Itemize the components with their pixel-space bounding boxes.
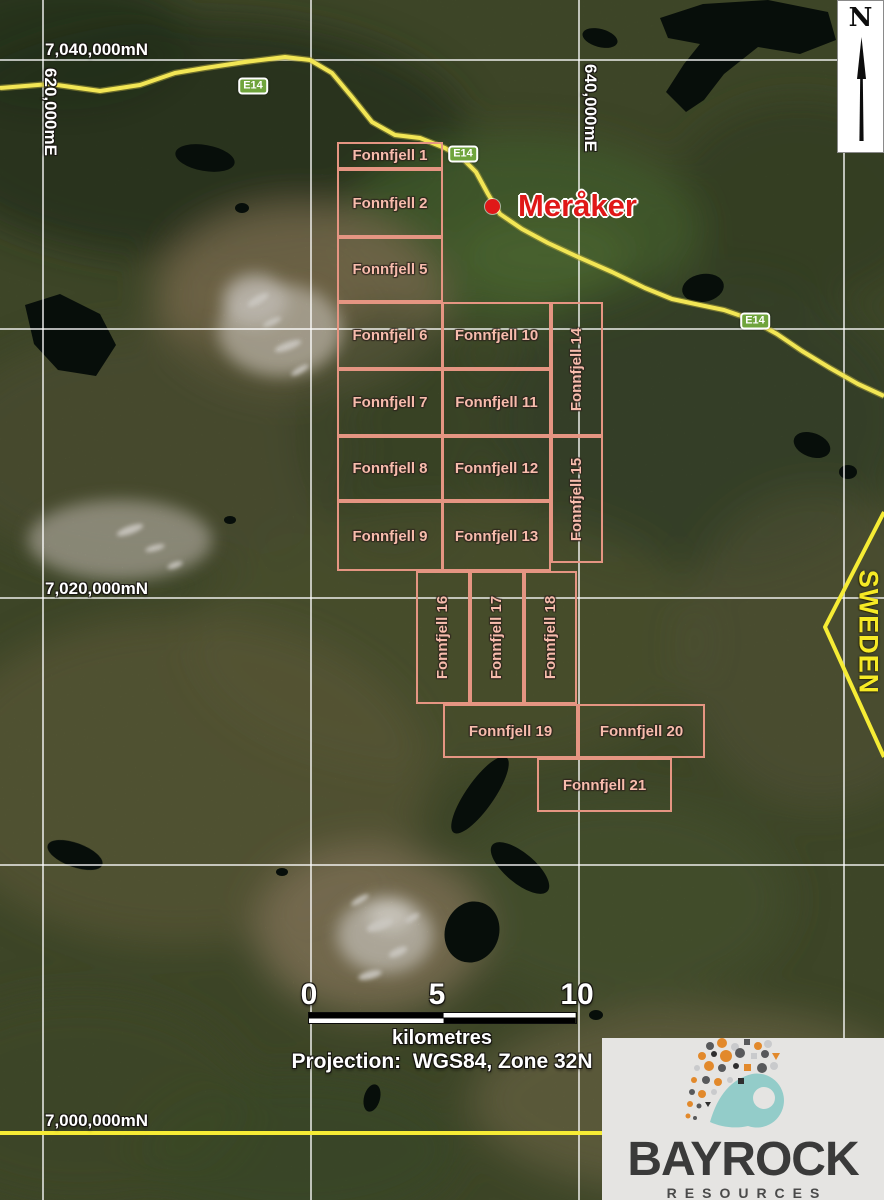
license-label: Fonnfjell 19: [469, 723, 552, 740]
northing-label: 7,000,000mN: [45, 1111, 148, 1131]
license-label: Fonnfjell 2: [353, 195, 428, 212]
northing-label: 7,040,000mN: [45, 40, 148, 60]
license-fonnfjell-6: Fonnfjell 6: [337, 302, 443, 369]
sweden-label: SWEDEN: [853, 570, 884, 695]
easting-label: 620,000mE: [40, 68, 60, 156]
license-fonnfjell-5: Fonnfjell 5: [337, 237, 443, 302]
license-fonnfjell-1: Fonnfjell 1: [337, 142, 443, 169]
license-fonnfjell-2: Fonnfjell 2: [337, 169, 443, 237]
license-fonnfjell-18: Fonnfjell 18: [524, 571, 577, 704]
license-label: Fonnfjell 8: [353, 460, 428, 477]
license-fonnfjell-19: Fonnfjell 19: [443, 704, 578, 758]
license-fonnfjell-12: Fonnfjell 12: [442, 436, 551, 501]
scale-bar: [308, 1012, 577, 1024]
license-fonnfjell-20: Fonnfjell 20: [578, 704, 705, 758]
license-fonnfjell-15: Fonnfjell 15: [551, 436, 603, 563]
satellite-claim-map: Fonnfjell 1Fonnfjell 2Fonnfjell 5Fonnfje…: [0, 0, 884, 1200]
license-label: Fonnfjell 1: [353, 147, 428, 164]
north-arrow-icon: [838, 1, 884, 154]
license-label: Fonnfjell 15: [569, 458, 586, 541]
license-fonnfjell-7: Fonnfjell 7: [337, 369, 443, 436]
north-arrow-box: N: [837, 0, 884, 153]
scale-tick-10: 10: [560, 978, 593, 1012]
license-label: Fonnfjell 13: [455, 528, 538, 545]
scale-bar-unit: kilometres: [392, 1027, 492, 1050]
license-label: Fonnfjell 16: [435, 596, 452, 679]
license-fonnfjell-10: Fonnfjell 10: [442, 302, 551, 369]
projection-note: Projection: WGS84, Zone 32N: [291, 1050, 592, 1074]
license-label: Fonnfjell 9: [353, 528, 428, 545]
license-fonnfjell-21: Fonnfjell 21: [537, 758, 672, 812]
license-label: Fonnfjell 6: [353, 327, 428, 344]
license-label: Fonnfjell 14: [569, 327, 586, 410]
meraker-town-dot: [485, 199, 500, 214]
bayrock-logo: BAYROCK RESOURCES: [602, 1038, 884, 1200]
bayrock-logo-mark: [602, 1038, 884, 1132]
license-label: Fonnfjell 7: [353, 394, 428, 411]
bayrock-logo-name: BAYROCK: [602, 1132, 884, 1187]
meraker-town-label: Meråker: [518, 188, 637, 224]
license-label: Fonnfjell 20: [600, 723, 683, 740]
scale-tick-5: 5: [429, 978, 446, 1012]
license-fonnfjell-14: Fonnfjell 14: [551, 302, 603, 436]
license-label: Fonnfjell 11: [455, 394, 538, 411]
license-label: Fonnfjell 21: [563, 777, 646, 794]
license-fonnfjell-17: Fonnfjell 17: [470, 571, 524, 704]
license-fonnfjell-16: Fonnfjell 16: [416, 571, 470, 704]
license-label: Fonnfjell 17: [489, 596, 506, 679]
bayrock-logo-subtitle: RESOURCES: [602, 1185, 884, 1200]
license-fonnfjell-8: Fonnfjell 8: [337, 436, 443, 501]
road-badge-e14: E14: [448, 146, 478, 163]
northing-label: 7,020,000mN: [45, 579, 148, 599]
license-fonnfjell-13: Fonnfjell 13: [442, 501, 551, 571]
license-fonnfjell-9: Fonnfjell 9: [337, 501, 443, 571]
license-fonnfjell-11: Fonnfjell 11: [442, 369, 551, 436]
license-label: Fonnfjell 5: [353, 261, 428, 278]
scale-tick-0: 0: [301, 978, 318, 1012]
license-label: Fonnfjell 12: [455, 460, 538, 477]
road-badge-e14: E14: [740, 313, 770, 330]
road-badge-e14: E14: [238, 78, 268, 95]
easting-label: 640,000mE: [580, 64, 600, 152]
license-label: Fonnfjell 18: [542, 596, 559, 679]
license-label: Fonnfjell 10: [455, 327, 538, 344]
